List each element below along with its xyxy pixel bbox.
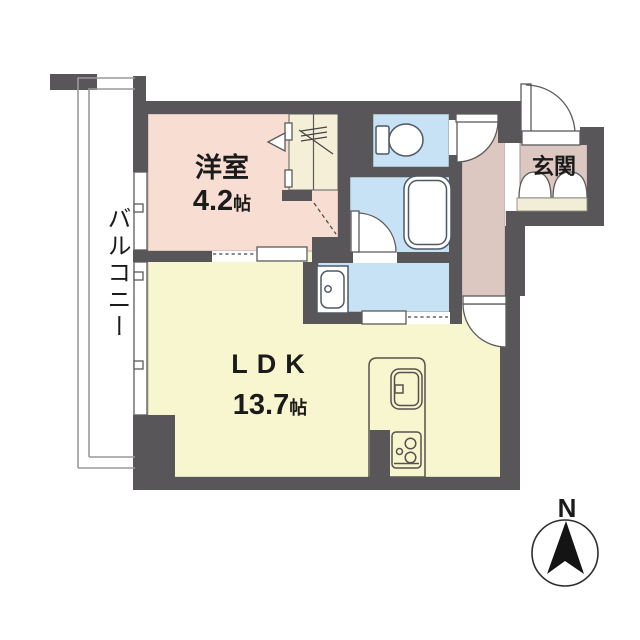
- north-label: N: [550, 493, 584, 524]
- wall: [587, 145, 604, 226]
- kitchen-wall-stub: [370, 430, 390, 477]
- wall: [350, 167, 462, 177]
- entrance-label: 玄関: [522, 149, 586, 181]
- window-latch: [134, 272, 143, 280]
- shoe-cabinet: [517, 198, 587, 211]
- wall: [505, 226, 525, 296]
- floor-plan-drawing: [0, 0, 640, 640]
- wall: [133, 477, 520, 490]
- window: [134, 262, 147, 415]
- toilet-icon: [376, 124, 423, 156]
- floor-plan: バルコニー 洋室 4.2帖 LDK 13.7帖 玄関 N: [0, 0, 640, 640]
- ldk-label: LDK: [215, 349, 330, 380]
- ldk-size: 13.7帖: [200, 389, 340, 422]
- western-room-size: 4.2帖: [162, 185, 282, 218]
- washbasin-icon: [317, 266, 348, 313]
- window-latch: [134, 361, 143, 369]
- bathtub-icon: [404, 176, 451, 249]
- wall: [580, 127, 604, 145]
- wall: [133, 114, 148, 172]
- entrance-door-sill: [522, 131, 580, 145]
- wall: [282, 190, 312, 201]
- western-room-size-unit: 帖: [233, 194, 251, 214]
- wall: [305, 312, 362, 324]
- window-latch: [134, 204, 143, 212]
- sliding-door-panel: [257, 247, 307, 261]
- wall: [133, 101, 498, 114]
- entrance-door-leaf: [521, 84, 531, 133]
- balcony-label: バルコニー: [99, 206, 134, 341]
- wall: [498, 101, 522, 143]
- balcony-divider-wall: [50, 74, 97, 90]
- wall: [396, 252, 450, 263]
- bathroom-door-leaf: [351, 211, 359, 252]
- wall: [338, 252, 354, 263]
- wall: [133, 415, 175, 477]
- western-room-size-value: 4.2: [193, 185, 233, 217]
- ldk-door-leaf: [463, 296, 506, 304]
- wall: [133, 251, 212, 262]
- ldk-size-unit: 帖: [289, 398, 307, 418]
- closet-door-jamb: [285, 170, 292, 187]
- sliding-door-panel: [362, 311, 406, 324]
- western-room-label: 洋室: [172, 146, 272, 185]
- bathroom-doorway: [353, 252, 397, 263]
- entrance-door-arc: [526, 85, 575, 134]
- closet-door-jamb: [285, 123, 292, 140]
- toilet-door-leaf: [456, 114, 498, 122]
- ldk-size-value: 13.7: [233, 389, 289, 421]
- wall: [338, 101, 373, 175]
- compass: [532, 520, 598, 586]
